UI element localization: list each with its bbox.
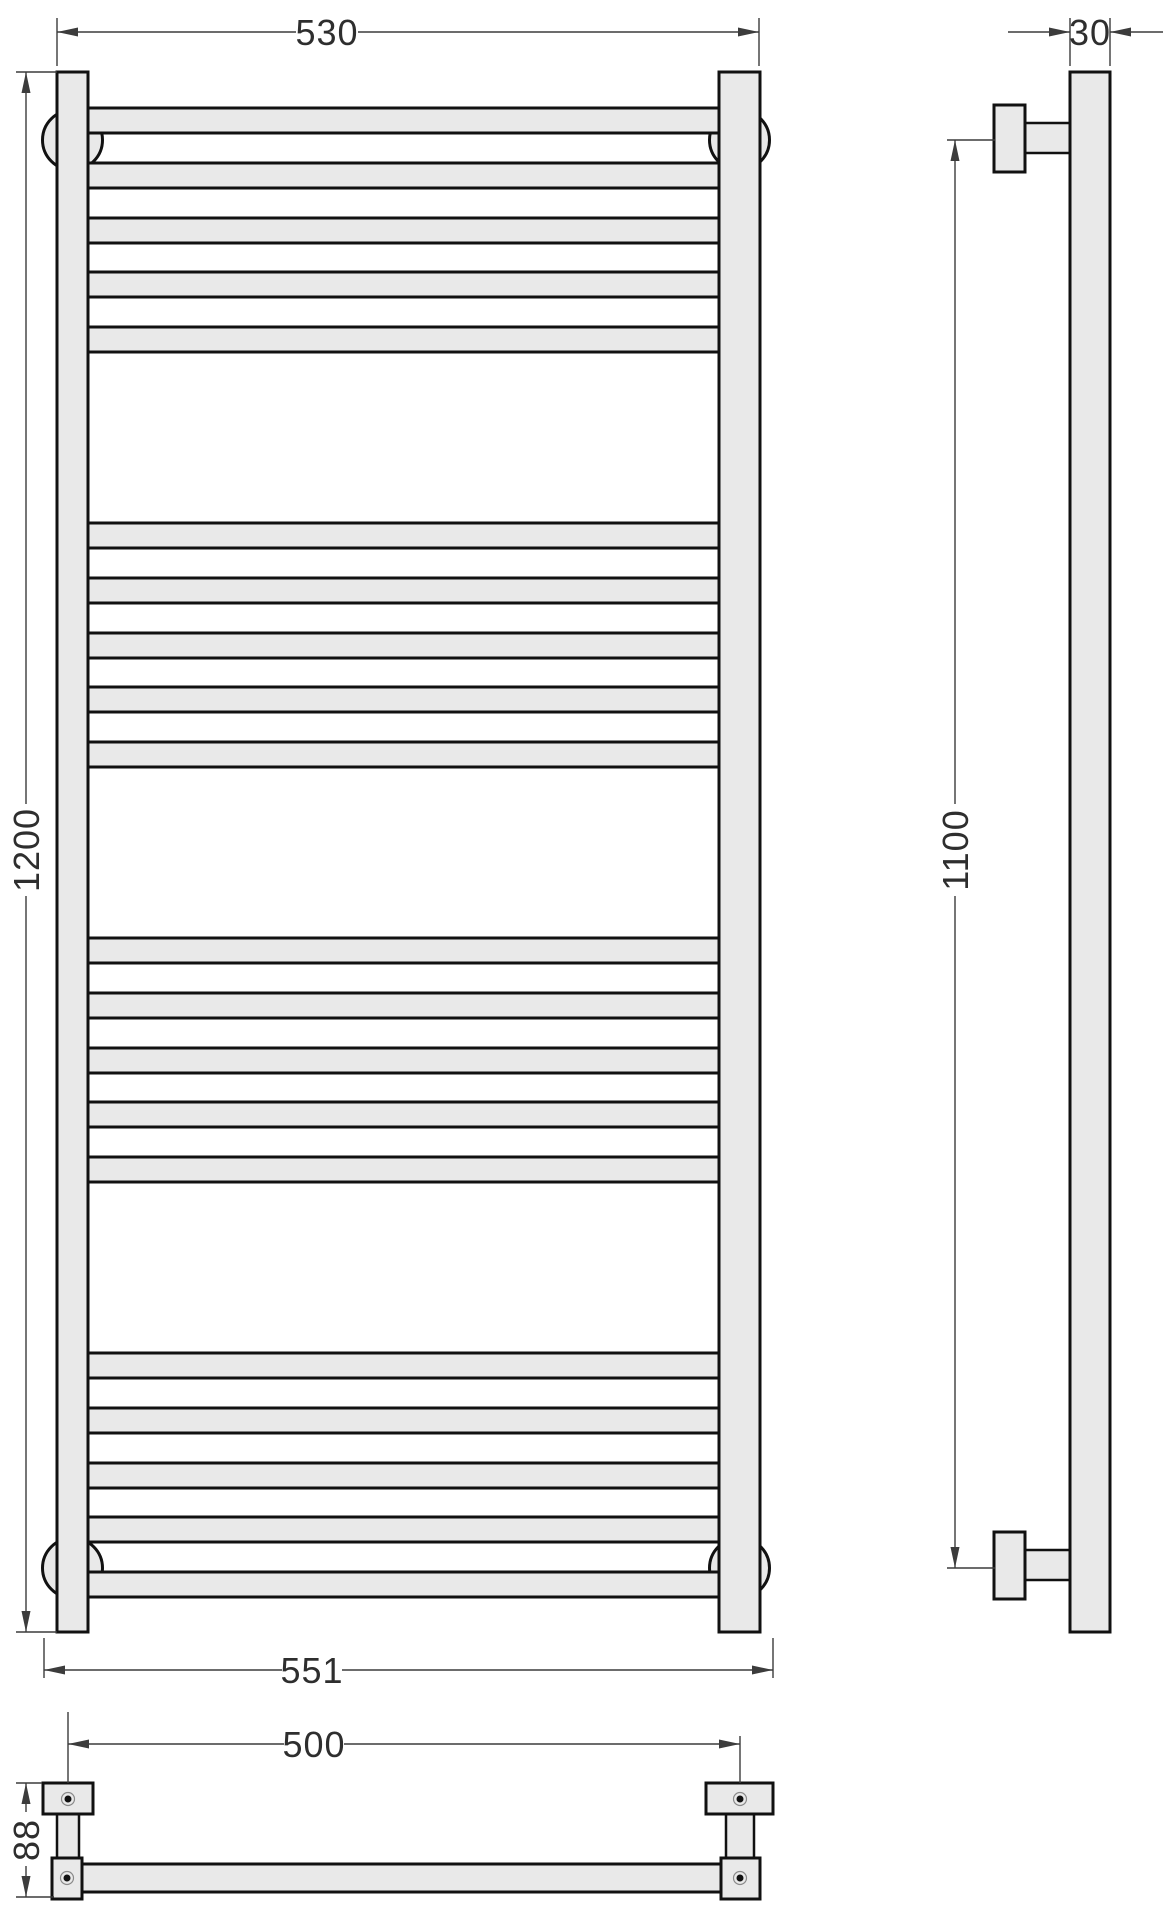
arrowhead <box>951 140 960 161</box>
side-post-bar <box>1070 72 1110 1632</box>
side-view <box>994 72 1110 1632</box>
rung <box>87 742 721 767</box>
front-view <box>43 72 770 1632</box>
arrowhead <box>719 1740 740 1749</box>
rung <box>87 687 721 712</box>
bracket-plate-bottom <box>994 1532 1025 1599</box>
arrowhead <box>752 1666 773 1675</box>
bottom-bracket-stem-left <box>57 1812 79 1860</box>
arrowhead <box>738 28 759 37</box>
bracket-stem-top <box>1023 123 1072 153</box>
bottom-bracket-stem-right <box>726 1812 754 1860</box>
arrowhead <box>951 1547 960 1568</box>
rung <box>87 993 721 1018</box>
dim-bottom-bracket-span: 500 <box>68 1712 740 1783</box>
rung <box>87 1157 721 1182</box>
rung <box>87 1353 721 1378</box>
dim-side-depth: 30 <box>1008 12 1163 66</box>
rung <box>87 578 721 603</box>
dim-front-height: 1200 <box>6 72 57 1632</box>
rung <box>87 163 721 188</box>
drawing-sheet: 530 30 1200 1100 551 <box>0 0 1163 1920</box>
rung <box>87 1408 721 1433</box>
screw-hole <box>65 1796 72 1803</box>
rung <box>87 108 721 133</box>
rung <box>87 1572 721 1597</box>
post-left <box>57 72 88 1632</box>
bracket-stem-bottom <box>1023 1550 1072 1580</box>
rung <box>87 523 721 548</box>
arrowhead <box>1110 28 1131 37</box>
towel-rail-technical-drawing: 530 30 1200 1100 551 <box>0 0 1163 1920</box>
rung <box>87 938 721 963</box>
bottom-tube <box>81 1864 722 1892</box>
rung <box>87 633 721 658</box>
rung <box>87 327 721 352</box>
screw-hole <box>737 1796 744 1803</box>
rung <box>87 1463 721 1488</box>
screw-hole <box>64 1875 71 1882</box>
arrowhead <box>22 1876 31 1897</box>
dim-1100-label: 1100 <box>935 809 976 890</box>
rung <box>87 1048 721 1073</box>
dim-30-label: 30 <box>1069 12 1111 53</box>
rung <box>87 218 721 243</box>
bottom-view <box>43 1783 773 1899</box>
dim-530-label: 530 <box>295 12 358 53</box>
screw-hole <box>737 1875 744 1882</box>
dim-1200-label: 1200 <box>6 808 47 892</box>
arrowhead <box>44 1666 65 1675</box>
arrowhead <box>1049 28 1070 37</box>
arrowhead <box>22 1783 31 1804</box>
dim-front-width-top: 530 <box>57 12 759 66</box>
bracket-plate-top <box>994 105 1025 172</box>
arrowhead <box>22 72 31 93</box>
post-right <box>719 72 760 1632</box>
dim-88-label: 88 <box>6 1819 47 1861</box>
rung <box>87 1102 721 1127</box>
arrowhead <box>22 1611 31 1632</box>
arrowhead <box>57 28 78 37</box>
arrowhead <box>68 1740 89 1749</box>
dim-side-bracket-span: 1100 <box>935 140 995 1568</box>
dim-500-label: 500 <box>282 1724 345 1765</box>
dim-front-width-overall: 551 <box>44 1638 773 1691</box>
dim-551-label: 551 <box>280 1650 343 1691</box>
rung <box>87 1517 721 1542</box>
rung <box>87 272 721 297</box>
